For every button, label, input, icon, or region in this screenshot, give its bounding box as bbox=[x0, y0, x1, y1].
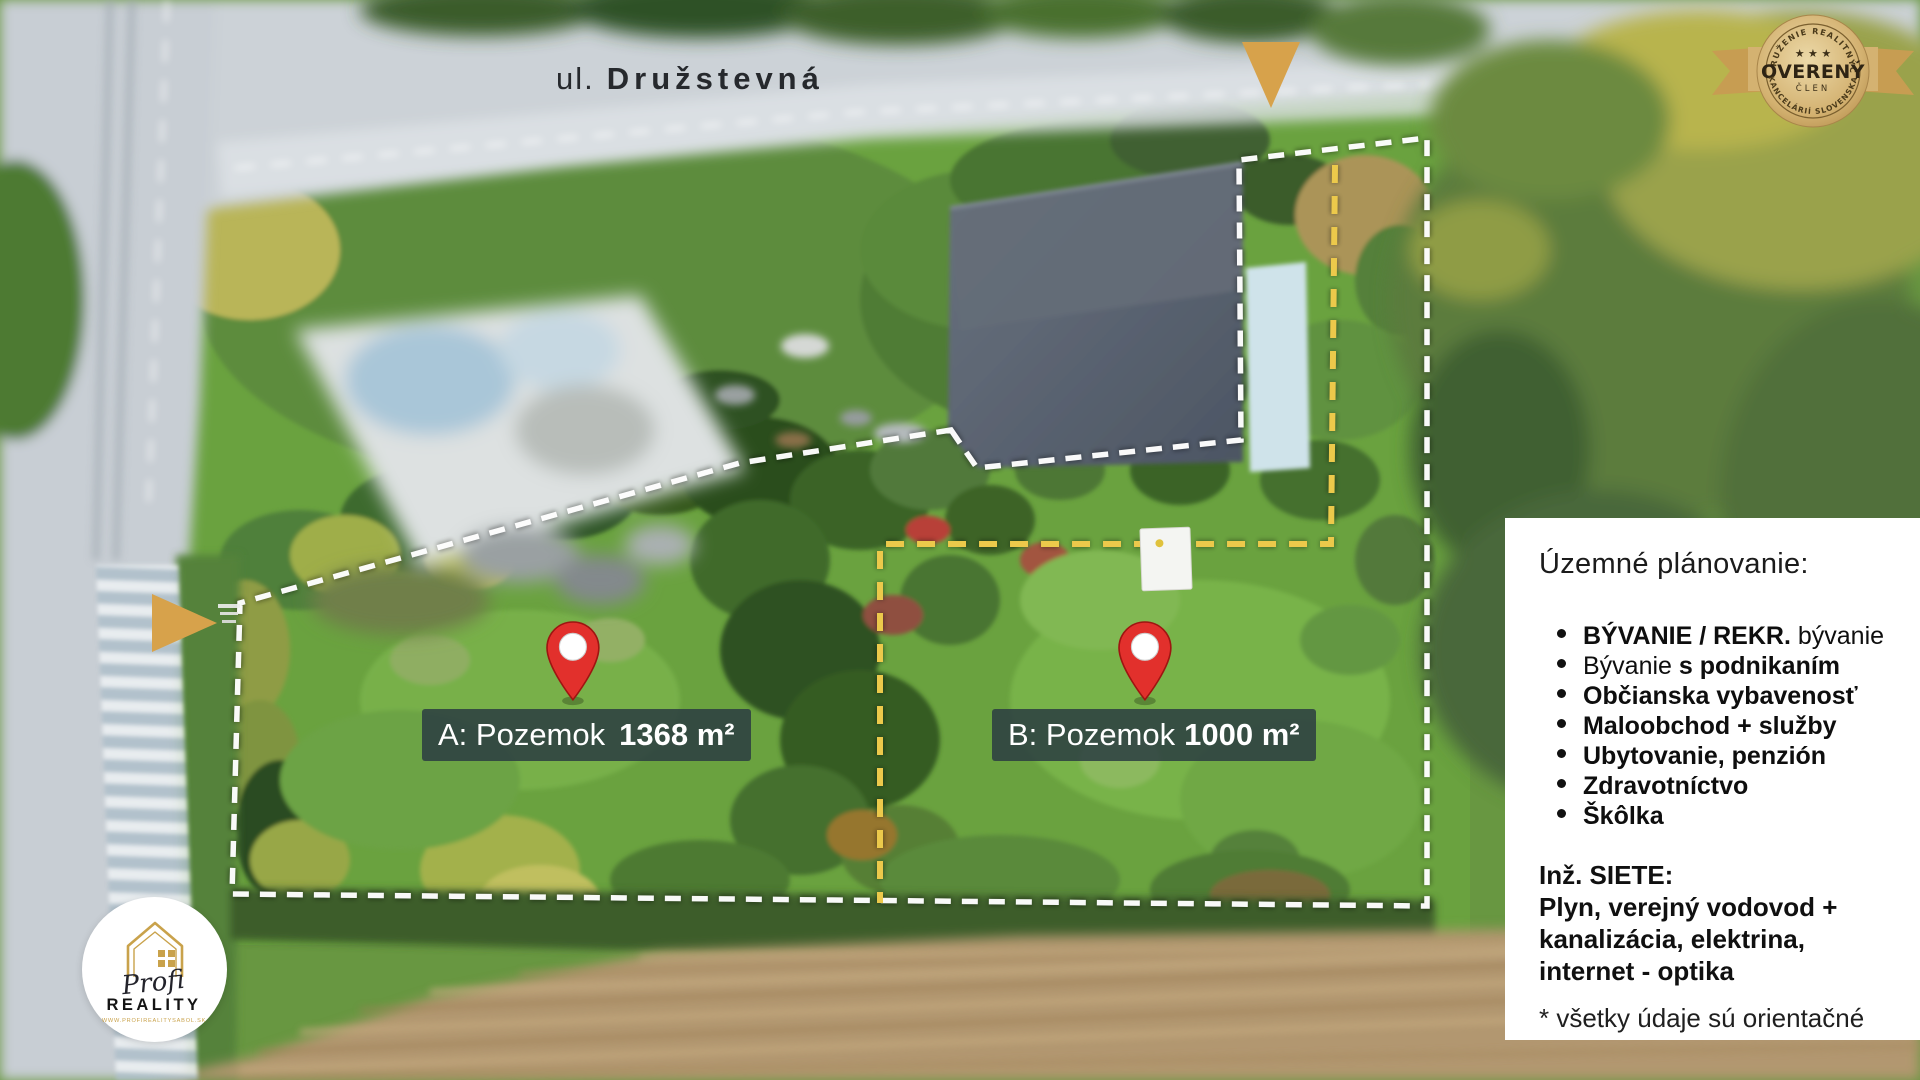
agency-logo: Profi REALITY WWW.PROFIREALITYSABOL.SK bbox=[82, 897, 227, 1042]
gold-arrow-down-icon bbox=[1242, 42, 1300, 108]
list-item: Zdravotníctvo bbox=[1557, 771, 1912, 801]
utilities-title: Inž. SIETE: bbox=[1539, 859, 1912, 891]
agency-logo-icon: Profi REALITY WWW.PROFIREALITYSABOL.SK bbox=[82, 897, 227, 1042]
house-window-icon bbox=[158, 950, 175, 967]
item-bold: Občianska vybavenosť bbox=[1583, 681, 1858, 711]
bullet-icon bbox=[1557, 689, 1566, 698]
street-prefix: ul. bbox=[556, 61, 595, 96]
parcel-b-name: B: Pozemok bbox=[1008, 717, 1175, 752]
panel-title: Územné plánovanie: bbox=[1539, 548, 1912, 581]
utilities-line: Plyn, verejný vodovod + bbox=[1539, 891, 1912, 923]
disclaimer-note: * všetky údaje sú orientačné bbox=[1539, 1003, 1912, 1034]
parcel-a-name: A: Pozemok bbox=[438, 717, 605, 752]
real-estate-aerial-ad: ul.Družstevná A: Pozemok1368 m² B: Pozem… bbox=[0, 0, 1920, 1080]
list-item: Ubytovanie, penzión bbox=[1557, 741, 1912, 771]
parcel-b-area: 1000 m² bbox=[1184, 717, 1299, 752]
list-item: Škôlka bbox=[1557, 801, 1912, 831]
street-name: Družstevná bbox=[607, 61, 824, 96]
item-bold: s podnikaním bbox=[1679, 651, 1840, 681]
badge-stars: ★ ★ ★ bbox=[1795, 47, 1832, 60]
bullet-icon bbox=[1557, 629, 1566, 638]
street-label: ul.Družstevná bbox=[556, 62, 824, 96]
list-item: Bývanie s podnikaním bbox=[1557, 651, 1912, 681]
gold-arrow-right-icon bbox=[152, 594, 217, 652]
utilities-block: Inž. SIETE: Plyn, verejný vodovod + kana… bbox=[1539, 859, 1912, 987]
utilities-line: kanalizácia, elektrina, bbox=[1539, 923, 1912, 955]
logo-name-text: REALITY bbox=[106, 996, 201, 1014]
badge-seal-icon: ZDRUŽENIE REALITNÝCH ★ ★ ★ OVERENÝ ČLEN … bbox=[1706, 5, 1920, 155]
item-rest: Bývanie bbox=[1583, 651, 1679, 681]
utilities-line: internet - optika bbox=[1539, 955, 1912, 987]
parcel-b-label: B: Pozemok1000 m² bbox=[992, 709, 1316, 761]
bullet-icon bbox=[1557, 659, 1566, 668]
zoning-list: BÝVANIE / REKR. bývanie Bývanie s podnik… bbox=[1539, 621, 1912, 831]
zoning-info-panel: Územné plánovanie: BÝVANIE / REKR. bývan… bbox=[1505, 518, 1920, 1040]
logo-url-text: WWW.PROFIREALITYSABOL.SK bbox=[102, 1018, 206, 1024]
parcel-a-area: 1368 m² bbox=[619, 717, 734, 752]
bullet-icon bbox=[1557, 719, 1566, 728]
terrace bbox=[1246, 262, 1310, 472]
badge-subtitle: ČLEN bbox=[1796, 82, 1830, 94]
item-bold: BÝVANIE / REKR. bbox=[1583, 621, 1791, 651]
item-rest: bývanie bbox=[1791, 621, 1884, 651]
list-item: Maloobchod + služby bbox=[1557, 711, 1912, 741]
item-bold: Maloobchod + služby bbox=[1583, 711, 1837, 741]
parcel-a-label: A: Pozemok1368 m² bbox=[422, 709, 751, 761]
list-item: BÝVANIE / REKR. bývanie bbox=[1557, 621, 1912, 651]
list-item: Občianska vybavenosť bbox=[1557, 681, 1912, 711]
bullet-icon bbox=[1557, 749, 1566, 758]
badge-title: OVERENÝ bbox=[1761, 59, 1865, 83]
bullet-icon bbox=[1557, 809, 1566, 818]
item-bold: Škôlka bbox=[1583, 801, 1664, 831]
white-shed bbox=[1140, 527, 1192, 591]
bullet-icon bbox=[1557, 779, 1566, 788]
item-bold: Zdravotníctvo bbox=[1583, 771, 1748, 801]
verified-member-badge: ZDRUŽENIE REALITNÝCH ★ ★ ★ OVERENÝ ČLEN … bbox=[1706, 5, 1920, 155]
item-bold: Ubytovanie, penzión bbox=[1583, 741, 1826, 771]
